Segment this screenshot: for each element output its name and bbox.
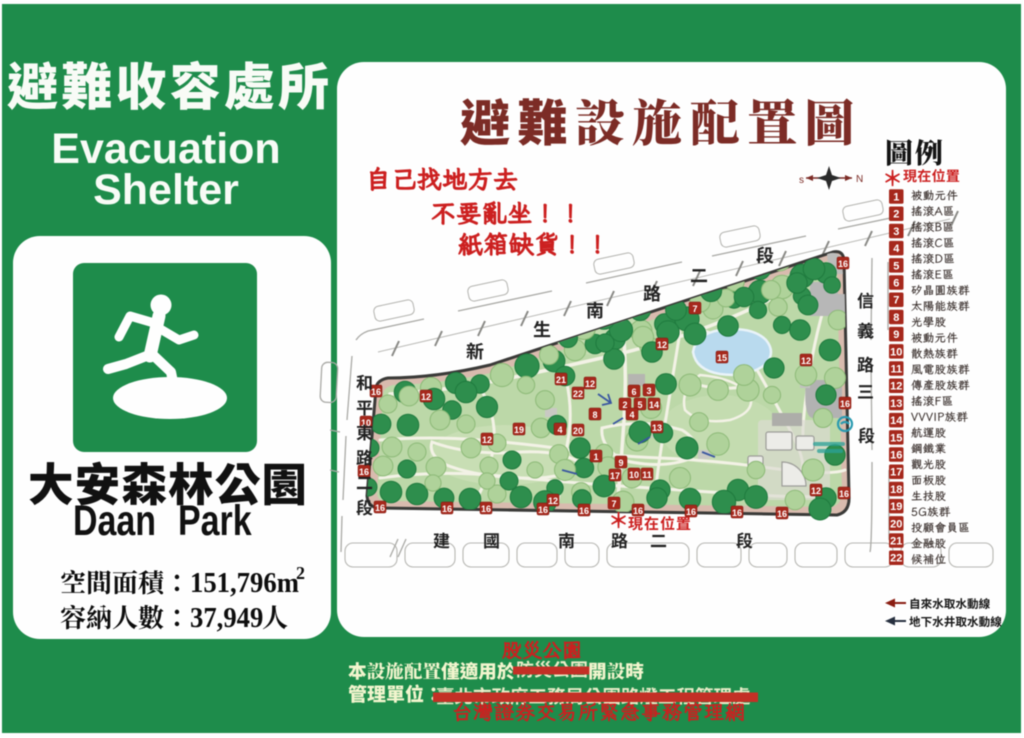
svg-text:N: N <box>856 174 863 185</box>
svg-text:16: 16 <box>838 259 848 269</box>
svg-text:20: 20 <box>890 518 902 530</box>
svg-text:17: 17 <box>890 467 902 479</box>
svg-text:12: 12 <box>657 340 667 350</box>
svg-text:Daan: Daan <box>73 497 156 545</box>
svg-text:3: 3 <box>646 386 651 396</box>
svg-text:21: 21 <box>556 375 566 385</box>
svg-text:16: 16 <box>686 507 696 517</box>
svg-text:16: 16 <box>633 506 643 516</box>
svg-text:16: 16 <box>371 387 381 397</box>
svg-text:20: 20 <box>573 426 583 436</box>
svg-text:2: 2 <box>893 209 899 221</box>
svg-text:5: 5 <box>637 400 642 410</box>
svg-text:37,949: 37,949 <box>190 602 263 634</box>
svg-text:17: 17 <box>610 471 620 481</box>
svg-text:21: 21 <box>890 536 902 548</box>
svg-text:10: 10 <box>629 470 639 480</box>
svg-text:12: 12 <box>482 435 492 445</box>
svg-text:4: 4 <box>629 410 634 420</box>
svg-text:16: 16 <box>777 509 787 519</box>
svg-text:19: 19 <box>890 501 902 513</box>
svg-text:16: 16 <box>538 505 548 515</box>
svg-text:4: 4 <box>893 243 900 255</box>
svg-text:15: 15 <box>890 432 902 444</box>
svg-text:Park: Park <box>178 497 252 545</box>
svg-text:18: 18 <box>890 484 902 496</box>
svg-text:s: s <box>799 175 804 186</box>
svg-text:7: 7 <box>893 295 899 307</box>
svg-text:6: 6 <box>631 387 636 397</box>
svg-text:8: 8 <box>592 410 597 420</box>
svg-text:16: 16 <box>481 504 491 514</box>
svg-text:14: 14 <box>649 400 659 410</box>
svg-text:19: 19 <box>514 425 524 435</box>
svg-text:16: 16 <box>442 504 452 514</box>
svg-text:14: 14 <box>890 415 903 427</box>
svg-text:16: 16 <box>732 508 742 518</box>
svg-text:12: 12 <box>548 496 558 506</box>
svg-text:13: 13 <box>652 423 662 433</box>
svg-text:2: 2 <box>296 563 305 583</box>
svg-text:22: 22 <box>890 553 902 565</box>
svg-text:9: 9 <box>618 458 623 468</box>
svg-text:16: 16 <box>359 467 369 477</box>
svg-text:12: 12 <box>421 392 431 402</box>
svg-text:9: 9 <box>893 329 899 341</box>
svg-text:16: 16 <box>890 450 902 462</box>
svg-text:16: 16 <box>840 399 850 409</box>
svg-text:3: 3 <box>893 226 899 238</box>
svg-text:13: 13 <box>890 398 902 410</box>
svg-text:151,796m: 151,796m <box>190 567 299 599</box>
svg-text:11: 11 <box>890 364 902 376</box>
svg-text:10: 10 <box>890 346 902 358</box>
svg-text:Shelter: Shelter <box>93 166 239 214</box>
svg-text:1: 1 <box>593 452 598 462</box>
svg-text:11: 11 <box>642 470 652 480</box>
svg-text:7: 7 <box>692 304 697 314</box>
svg-text:16: 16 <box>375 503 385 513</box>
svg-text:12: 12 <box>890 381 902 393</box>
svg-text:22: 22 <box>573 389 583 399</box>
svg-text:15: 15 <box>717 353 727 363</box>
svg-text:12: 12 <box>801 356 811 366</box>
svg-text:6: 6 <box>893 278 899 290</box>
svg-text:5: 5 <box>893 260 899 272</box>
svg-text:12: 12 <box>585 379 595 389</box>
svg-text:16: 16 <box>839 489 849 499</box>
svg-text:16: 16 <box>579 506 589 516</box>
svg-text:8: 8 <box>893 312 899 324</box>
svg-text:12: 12 <box>811 486 821 496</box>
svg-text:1: 1 <box>893 192 899 204</box>
svg-text:7: 7 <box>611 499 616 509</box>
svg-text:4: 4 <box>557 425 562 435</box>
